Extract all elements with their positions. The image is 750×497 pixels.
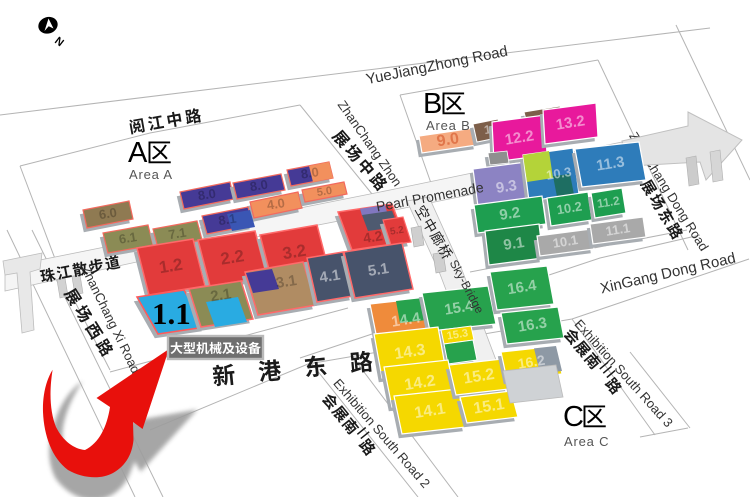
svg-text:Area C: Area C <box>564 434 609 449</box>
svg-text:4.1: 4.1 <box>318 266 341 286</box>
svg-text:4.0: 4.0 <box>266 195 286 213</box>
svg-text:6.1: 6.1 <box>118 229 138 247</box>
svg-text:8.0: 8.0 <box>197 186 217 204</box>
svg-text:9.1: 9.1 <box>502 234 525 254</box>
svg-text:A: A <box>128 137 148 169</box>
svg-text:3.2: 3.2 <box>281 241 307 263</box>
svg-text:3.1: 3.1 <box>275 272 298 292</box>
svg-text:9.0: 9.0 <box>436 130 461 150</box>
svg-text:6.0: 6.0 <box>98 205 118 223</box>
svg-text:5.1: 5.1 <box>367 260 390 280</box>
svg-text:B: B <box>423 88 442 120</box>
svg-text:2.2: 2.2 <box>219 246 245 268</box>
svg-text:1.1: 1.1 <box>152 296 191 331</box>
svg-text:Area A: Area A <box>129 167 173 182</box>
svg-text:5.2: 5.2 <box>389 225 405 238</box>
svg-text:9.3: 9.3 <box>495 177 518 197</box>
svg-text:8.0: 8.0 <box>300 164 320 182</box>
svg-text:5.0: 5.0 <box>316 185 333 199</box>
svg-text:8.0: 8.0 <box>249 177 269 195</box>
svg-text:C: C <box>563 401 584 433</box>
svg-text:Area B: Area B <box>426 118 471 133</box>
svg-text:8.1: 8.1 <box>217 211 237 229</box>
svg-text:1.2: 1.2 <box>158 255 184 277</box>
svg-text:2.1: 2.1 <box>209 285 232 305</box>
svg-text:4.2: 4.2 <box>362 227 384 246</box>
svg-text:9.2: 9.2 <box>498 204 521 224</box>
